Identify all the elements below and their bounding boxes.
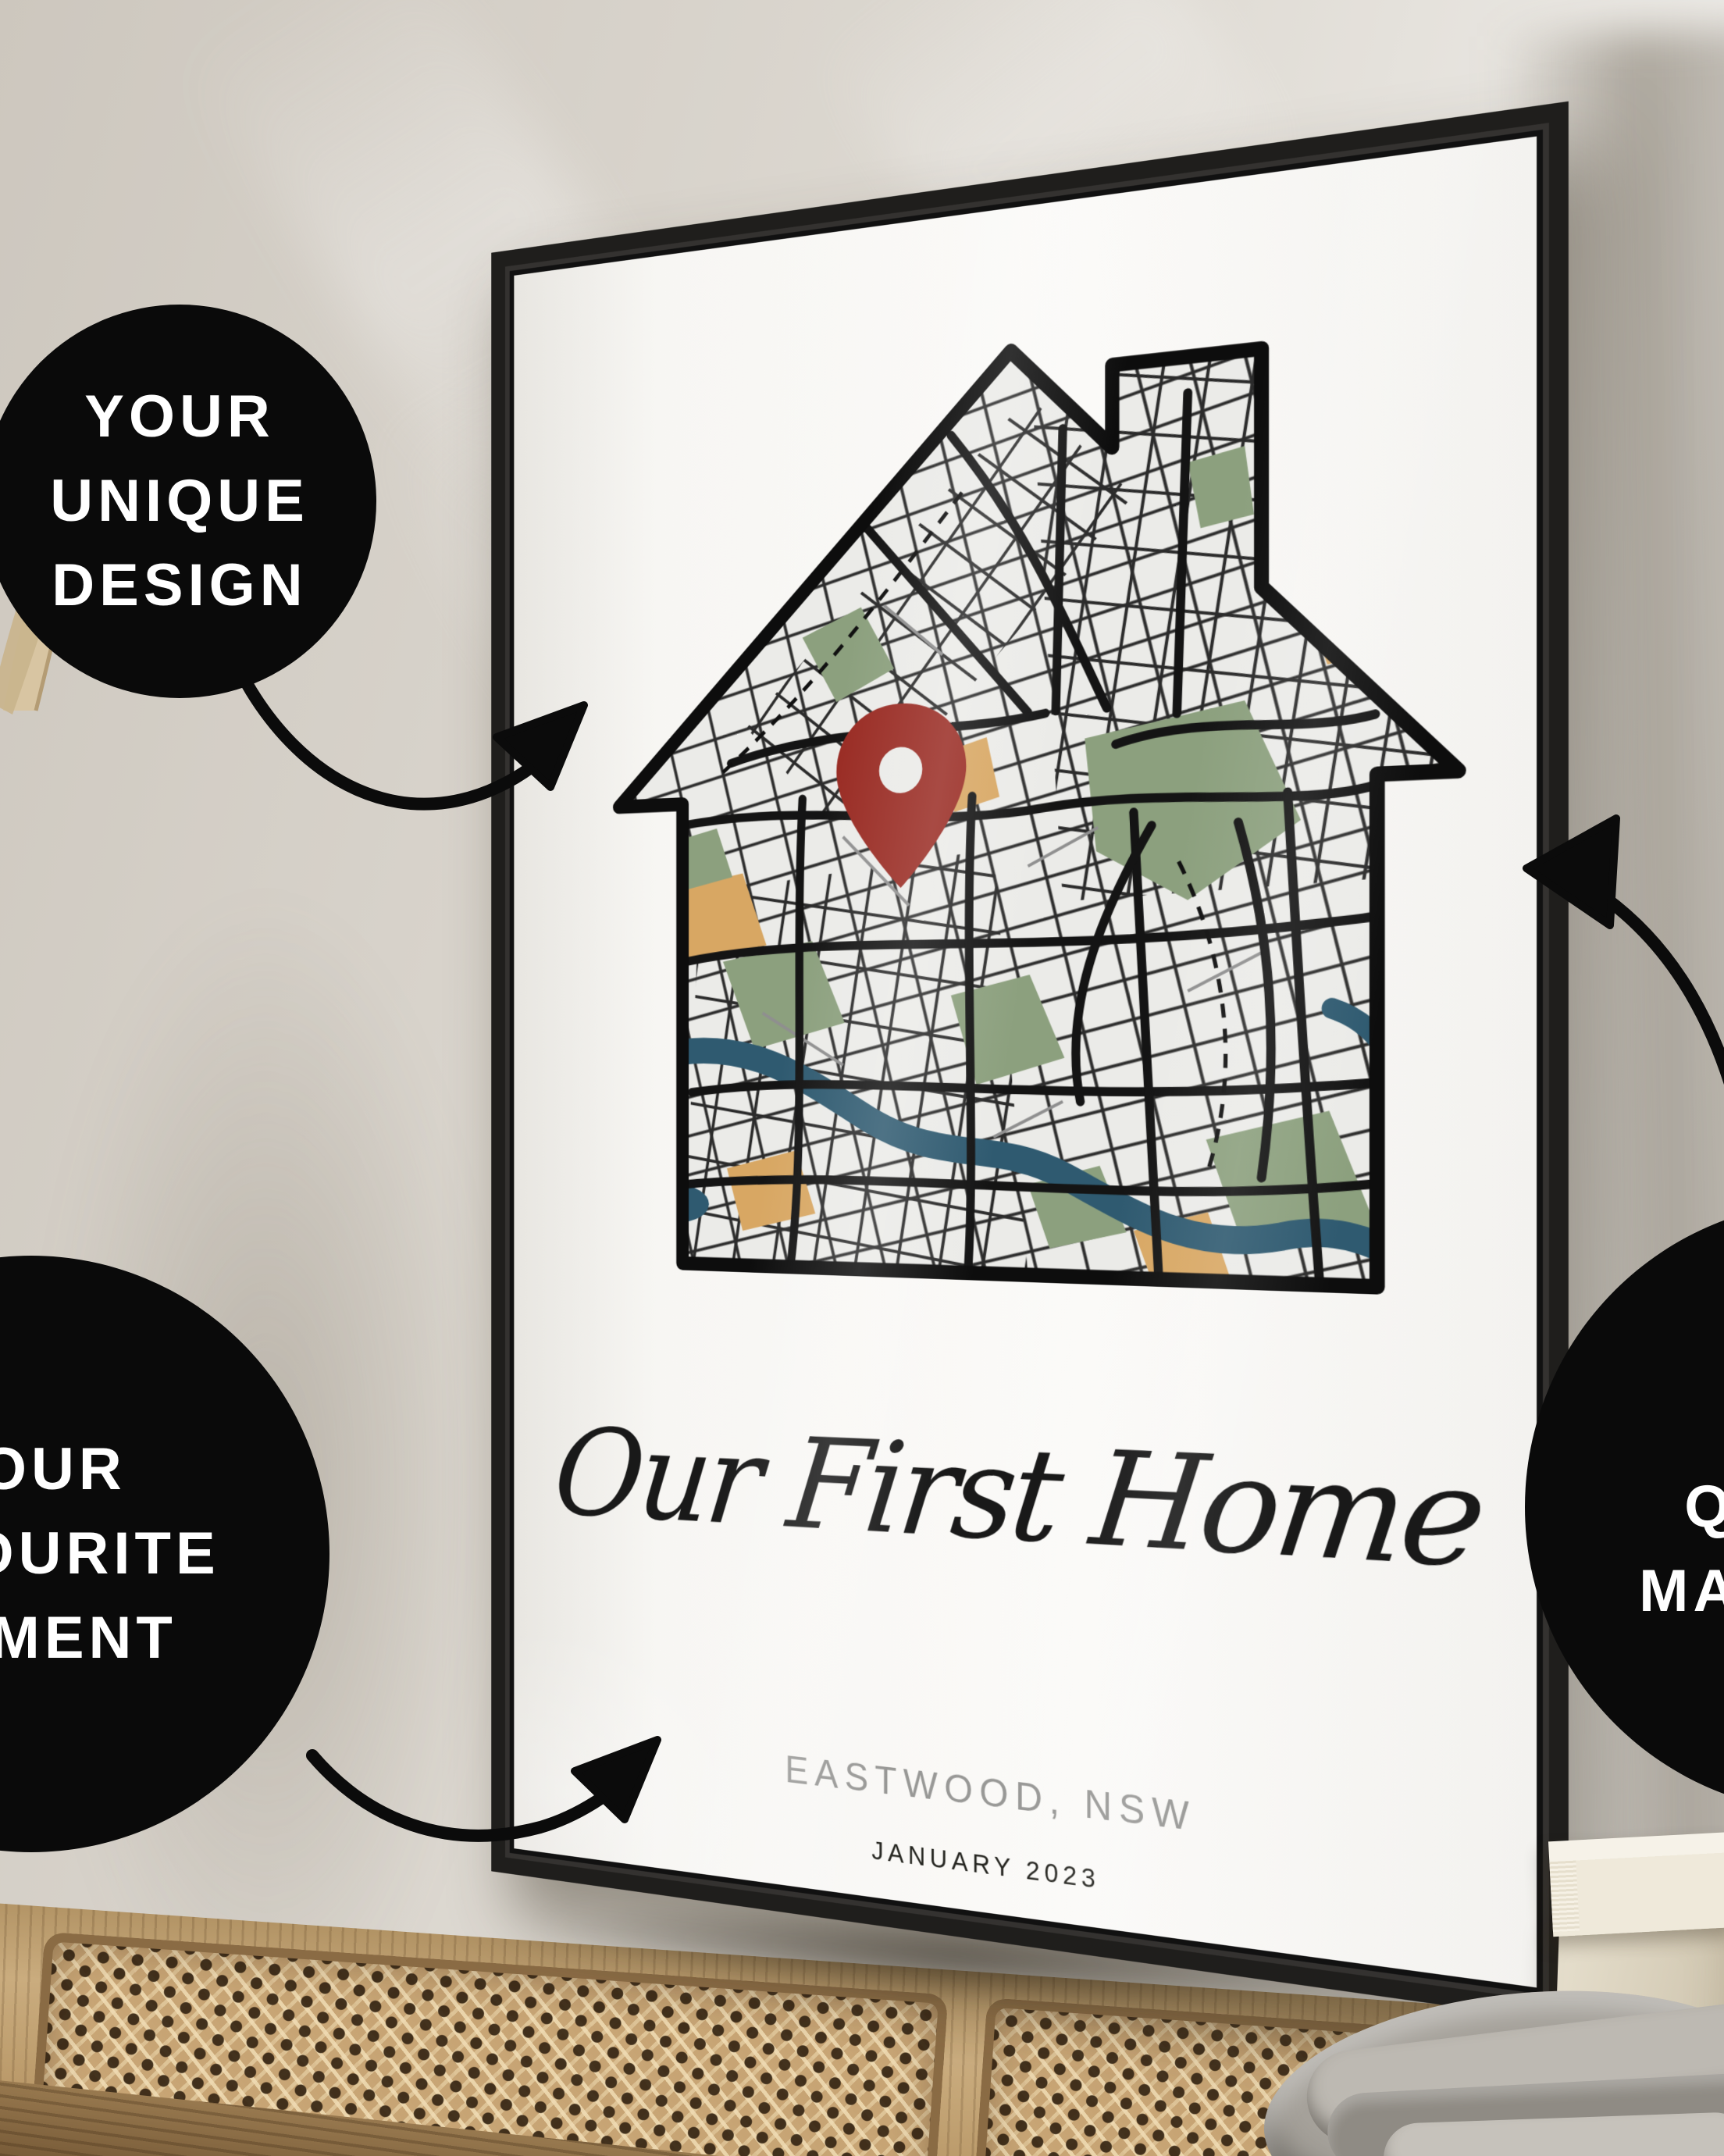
badge-line: YOUR: [0, 1427, 126, 1512]
poster-paper: Our First Home EASTWOOD, NSW JANUARY 202…: [514, 137, 1537, 1988]
badge-line: FAVOURITE: [0, 1512, 220, 1596]
badge-unique-design: YOUR UNIQUE DESIGN: [0, 305, 376, 698]
stacked-book: [1548, 1832, 1724, 1937]
product-photo-scene: Our First Home EASTWOOD, NSW JANUARY 202…: [0, 0, 1724, 2156]
badge-line: MATERIALS: [1639, 1549, 1724, 1634]
badge-line: UNIQUE: [50, 459, 309, 543]
badge-line: YOUR: [84, 375, 275, 459]
framed-poster: Our First Home EASTWOOD, NSW JANUARY 202…: [491, 102, 1569, 2023]
house-shaped-map: [607, 271, 1473, 1317]
badge-line: MOMENT: [0, 1596, 177, 1680]
badge-line: QUALITY: [1684, 1465, 1724, 1549]
poster-title-script: Our First Home: [506, 1400, 1549, 1602]
badge-line: DESIGN: [52, 543, 307, 628]
